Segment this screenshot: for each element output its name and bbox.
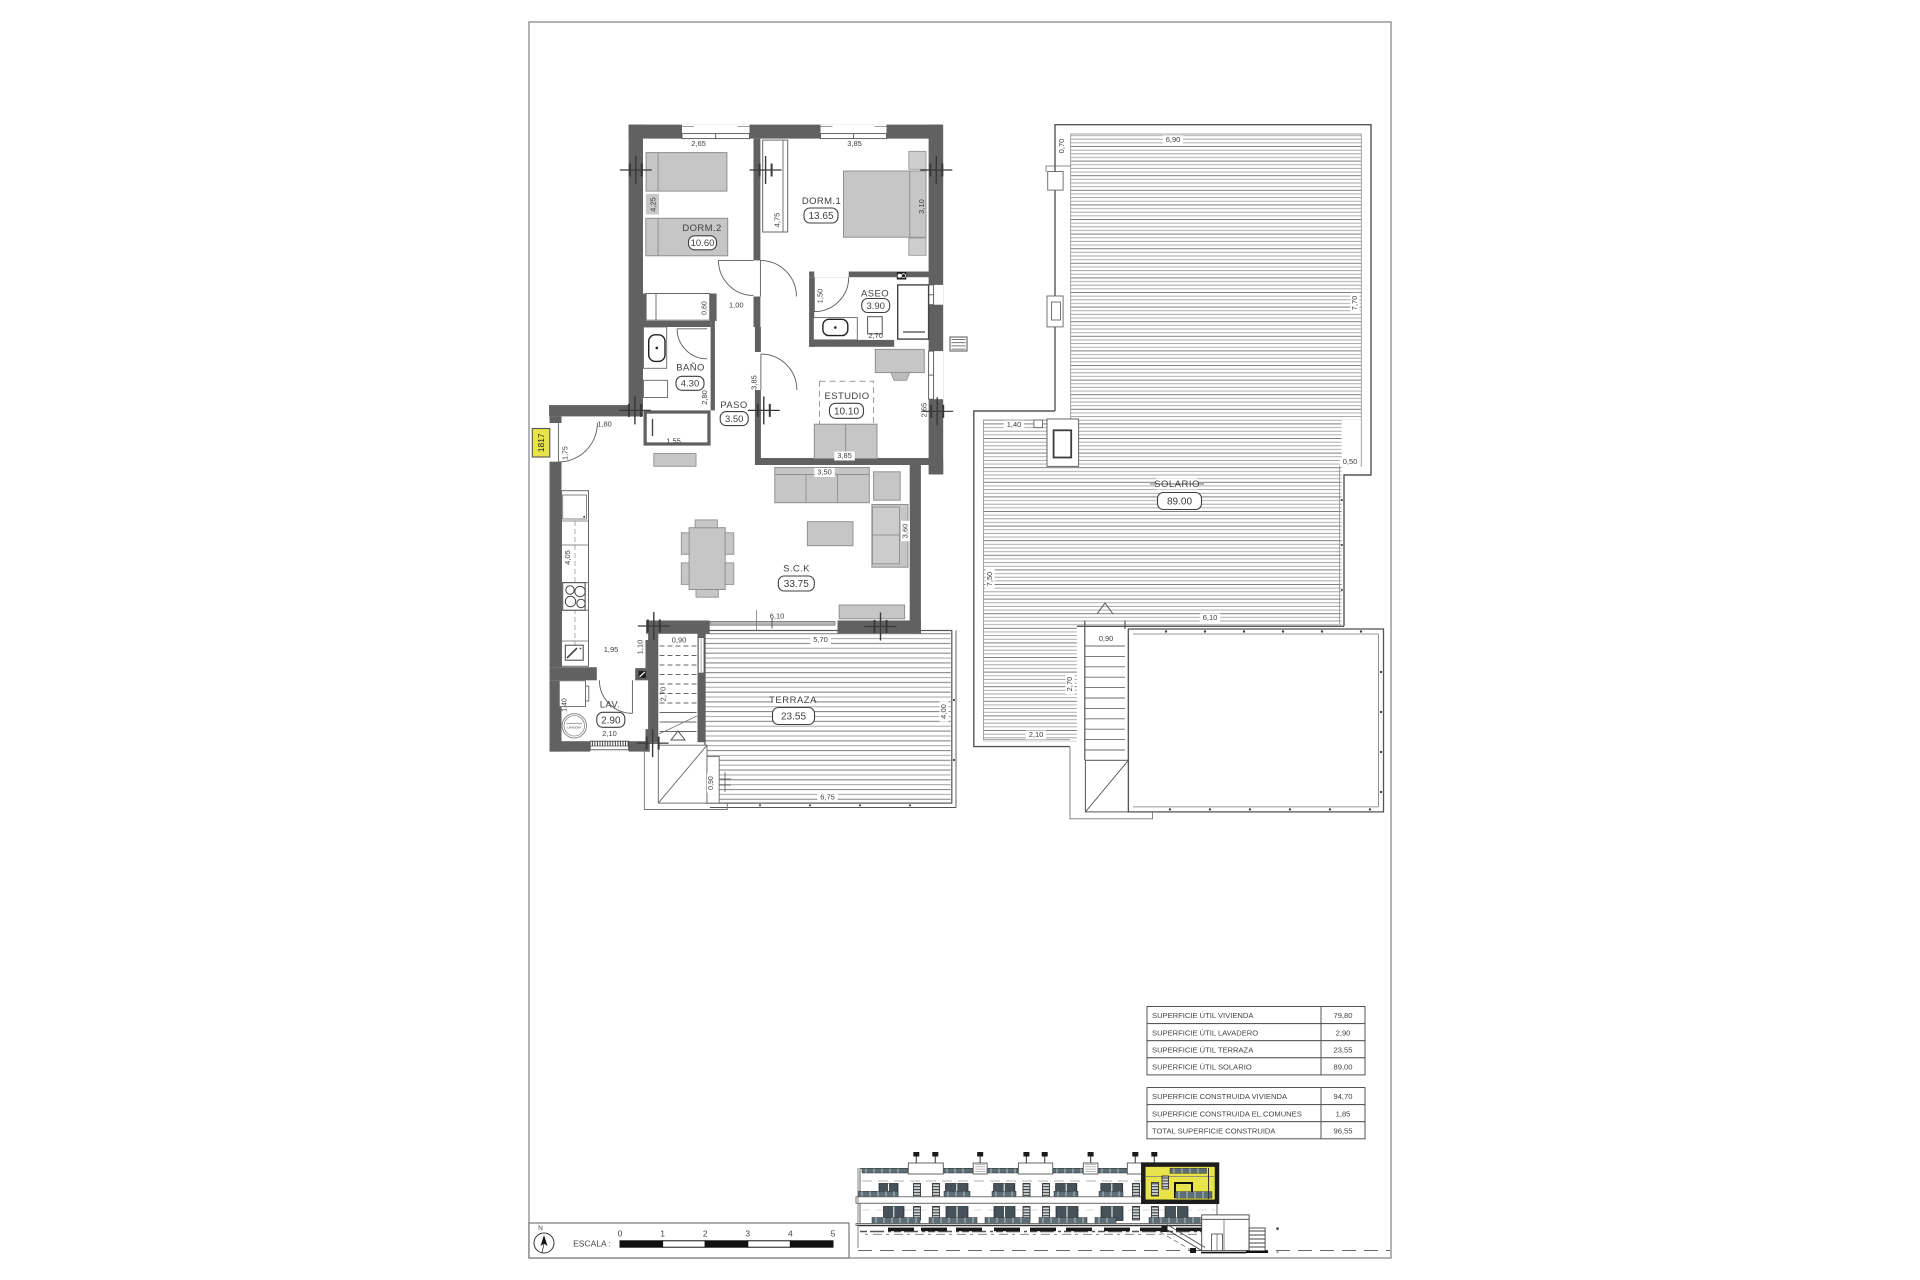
svg-text:0,90: 0,90 <box>708 776 715 790</box>
svg-text:SUPERFICIE ÚTIL LAVADERO: SUPERFICIE ÚTIL LAVADERO <box>1152 1028 1258 1037</box>
svg-text:1,80: 1,80 <box>597 419 612 428</box>
svg-text:0,60: 0,60 <box>702 301 709 315</box>
svg-text:5,70: 5,70 <box>813 635 828 644</box>
svg-text:2,80: 2,80 <box>700 390 709 405</box>
svg-text:TOTAL SUPERFICIE CONSTRUIDA: TOTAL SUPERFICIE CONSTRUIDA <box>1152 1126 1276 1135</box>
svg-text:23.55: 23.55 <box>781 712 806 723</box>
svg-text:2,65: 2,65 <box>691 139 706 148</box>
svg-text:2,10: 2,10 <box>602 729 617 738</box>
svg-text:SUPERFICIE ÚTIL SOLARIO: SUPERFICIE ÚTIL SOLARIO <box>1152 1063 1252 1072</box>
svg-text:SOLARIO: SOLARIO <box>1154 479 1200 490</box>
svg-text:BAÑO: BAÑO <box>676 363 705 374</box>
svg-text:DORM.1: DORM.1 <box>802 196 841 207</box>
svg-text:S.C.K: S.C.K <box>783 564 810 575</box>
svg-text:96,55: 96,55 <box>1333 1126 1352 1135</box>
svg-text:2,65: 2,65 <box>919 403 928 418</box>
svg-text:TERRAZA: TERRAZA <box>769 695 817 706</box>
svg-text:1,00: 1,00 <box>729 301 744 310</box>
svg-text:10.10: 10.10 <box>834 406 859 417</box>
svg-text:5: 5 <box>831 1229 836 1239</box>
svg-text:3: 3 <box>745 1229 750 1239</box>
svg-text:3,60: 3,60 <box>901 524 910 539</box>
svg-text:4,25: 4,25 <box>649 197 658 212</box>
svg-text:1,55: 1,55 <box>666 437 681 446</box>
svg-text:PASO: PASO <box>720 400 747 411</box>
svg-text:LAVADORA: LAVADORA <box>567 726 581 730</box>
svg-text:SUPERFICIE CONSTRUIDA EL.COMUN: SUPERFICIE CONSTRUIDA EL.COMUNES <box>1152 1109 1302 1118</box>
svg-text:1,50: 1,50 <box>816 289 825 304</box>
svg-text:2: 2 <box>703 1229 708 1239</box>
svg-text:4: 4 <box>788 1229 793 1239</box>
svg-text:1,40: 1,40 <box>562 698 569 712</box>
svg-text:6,75: 6,75 <box>820 793 835 802</box>
svg-text:3.50: 3.50 <box>725 414 744 425</box>
svg-text:1817: 1817 <box>536 433 546 452</box>
svg-text:1,95: 1,95 <box>604 645 619 654</box>
svg-text:3,85: 3,85 <box>749 375 758 390</box>
svg-text:89.00: 89.00 <box>1167 497 1192 508</box>
svg-text:3,50: 3,50 <box>817 468 832 477</box>
svg-text:33.75: 33.75 <box>784 579 809 590</box>
svg-text:0,70: 0,70 <box>1057 139 1066 154</box>
svg-text:79,80: 79,80 <box>1333 1011 1352 1020</box>
svg-text:ESTUDIO: ESTUDIO <box>824 391 869 402</box>
svg-text:4.30: 4.30 <box>681 379 700 390</box>
svg-text:1,10: 1,10 <box>636 640 645 655</box>
svg-text:SUPERFICIE ÚTIL VIVIENDA: SUPERFICIE ÚTIL VIVIENDA <box>1152 1011 1254 1020</box>
svg-text:94,70: 94,70 <box>1333 1092 1352 1101</box>
svg-text:4,75: 4,75 <box>773 213 782 228</box>
svg-text:2,70: 2,70 <box>1065 677 1074 692</box>
svg-text:3,10: 3,10 <box>917 199 926 214</box>
svg-text:1,40: 1,40 <box>1007 420 1022 429</box>
svg-text:7,50: 7,50 <box>985 572 994 587</box>
svg-text:89,00: 89,00 <box>1333 1063 1352 1072</box>
svg-text:2,70: 2,70 <box>659 687 668 702</box>
svg-text:2.90: 2.90 <box>601 715 621 726</box>
svg-text:2,90: 2,90 <box>1336 1028 1351 1037</box>
svg-text:ASEO: ASEO <box>861 289 889 300</box>
svg-text:23,55: 23,55 <box>1333 1045 1352 1054</box>
svg-text:0: 0 <box>618 1229 623 1239</box>
svg-text:0,50: 0,50 <box>1343 457 1358 466</box>
svg-text:6,90: 6,90 <box>1166 135 1181 144</box>
svg-text:SUPERFICIE CONSTRUIDA VIVIENDA: SUPERFICIE CONSTRUIDA VIVIENDA <box>1152 1092 1288 1101</box>
svg-text:LAV.: LAV. <box>600 700 621 711</box>
svg-text:1,75: 1,75 <box>563 446 570 460</box>
svg-text:7,70: 7,70 <box>1350 296 1359 311</box>
svg-text:N: N <box>538 1225 543 1232</box>
svg-text:0,90: 0,90 <box>672 636 687 645</box>
svg-text:ESCALA :: ESCALA : <box>573 1239 611 1249</box>
svg-text:2,10: 2,10 <box>1029 730 1044 739</box>
svg-text:DORM.2: DORM.2 <box>682 223 721 234</box>
svg-text:4,05: 4,05 <box>563 550 572 565</box>
svg-text:1,85: 1,85 <box>1336 1109 1351 1118</box>
svg-text:3.90: 3.90 <box>866 301 885 312</box>
svg-text:0,90: 0,90 <box>1099 634 1114 643</box>
svg-text:10.60: 10.60 <box>691 238 715 249</box>
svg-text:3,85: 3,85 <box>837 451 852 460</box>
svg-text:13.65: 13.65 <box>808 211 833 222</box>
svg-text:1: 1 <box>660 1229 665 1239</box>
svg-text:6,10: 6,10 <box>1203 613 1218 622</box>
svg-text:2,70: 2,70 <box>868 331 883 340</box>
svg-text:3,85: 3,85 <box>847 139 862 148</box>
svg-text:SUPERFICIE ÚTIL TERRAZA: SUPERFICIE ÚTIL TERRAZA <box>1152 1045 1254 1054</box>
svg-text:4,00: 4,00 <box>939 704 948 719</box>
